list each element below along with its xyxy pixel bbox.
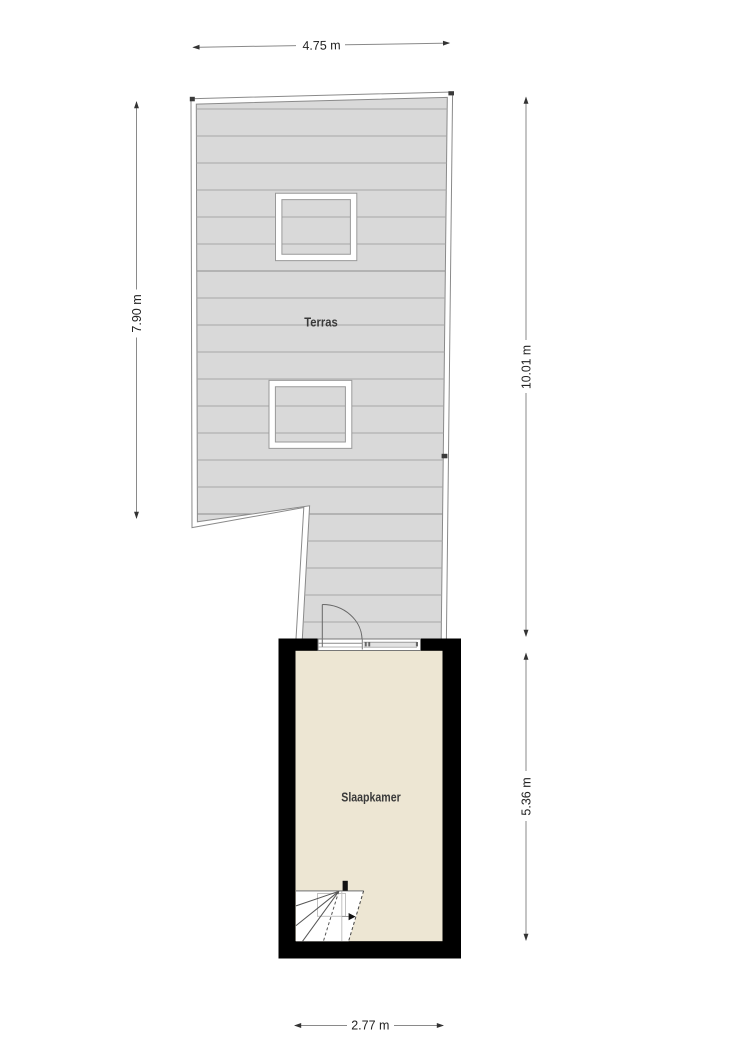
svg-text:4.75 m: 4.75 m <box>302 38 340 53</box>
svg-text:5.36 m: 5.36 m <box>520 777 534 815</box>
svg-text:Slaapkamer: Slaapkamer <box>341 791 401 805</box>
svg-text:Terras: Terras <box>304 316 338 330</box>
svg-text:2.77 m: 2.77 m <box>351 1019 389 1033</box>
svg-text:10.01 m: 10.01 m <box>520 345 534 389</box>
svg-text:7.90 m: 7.90 m <box>130 294 144 332</box>
